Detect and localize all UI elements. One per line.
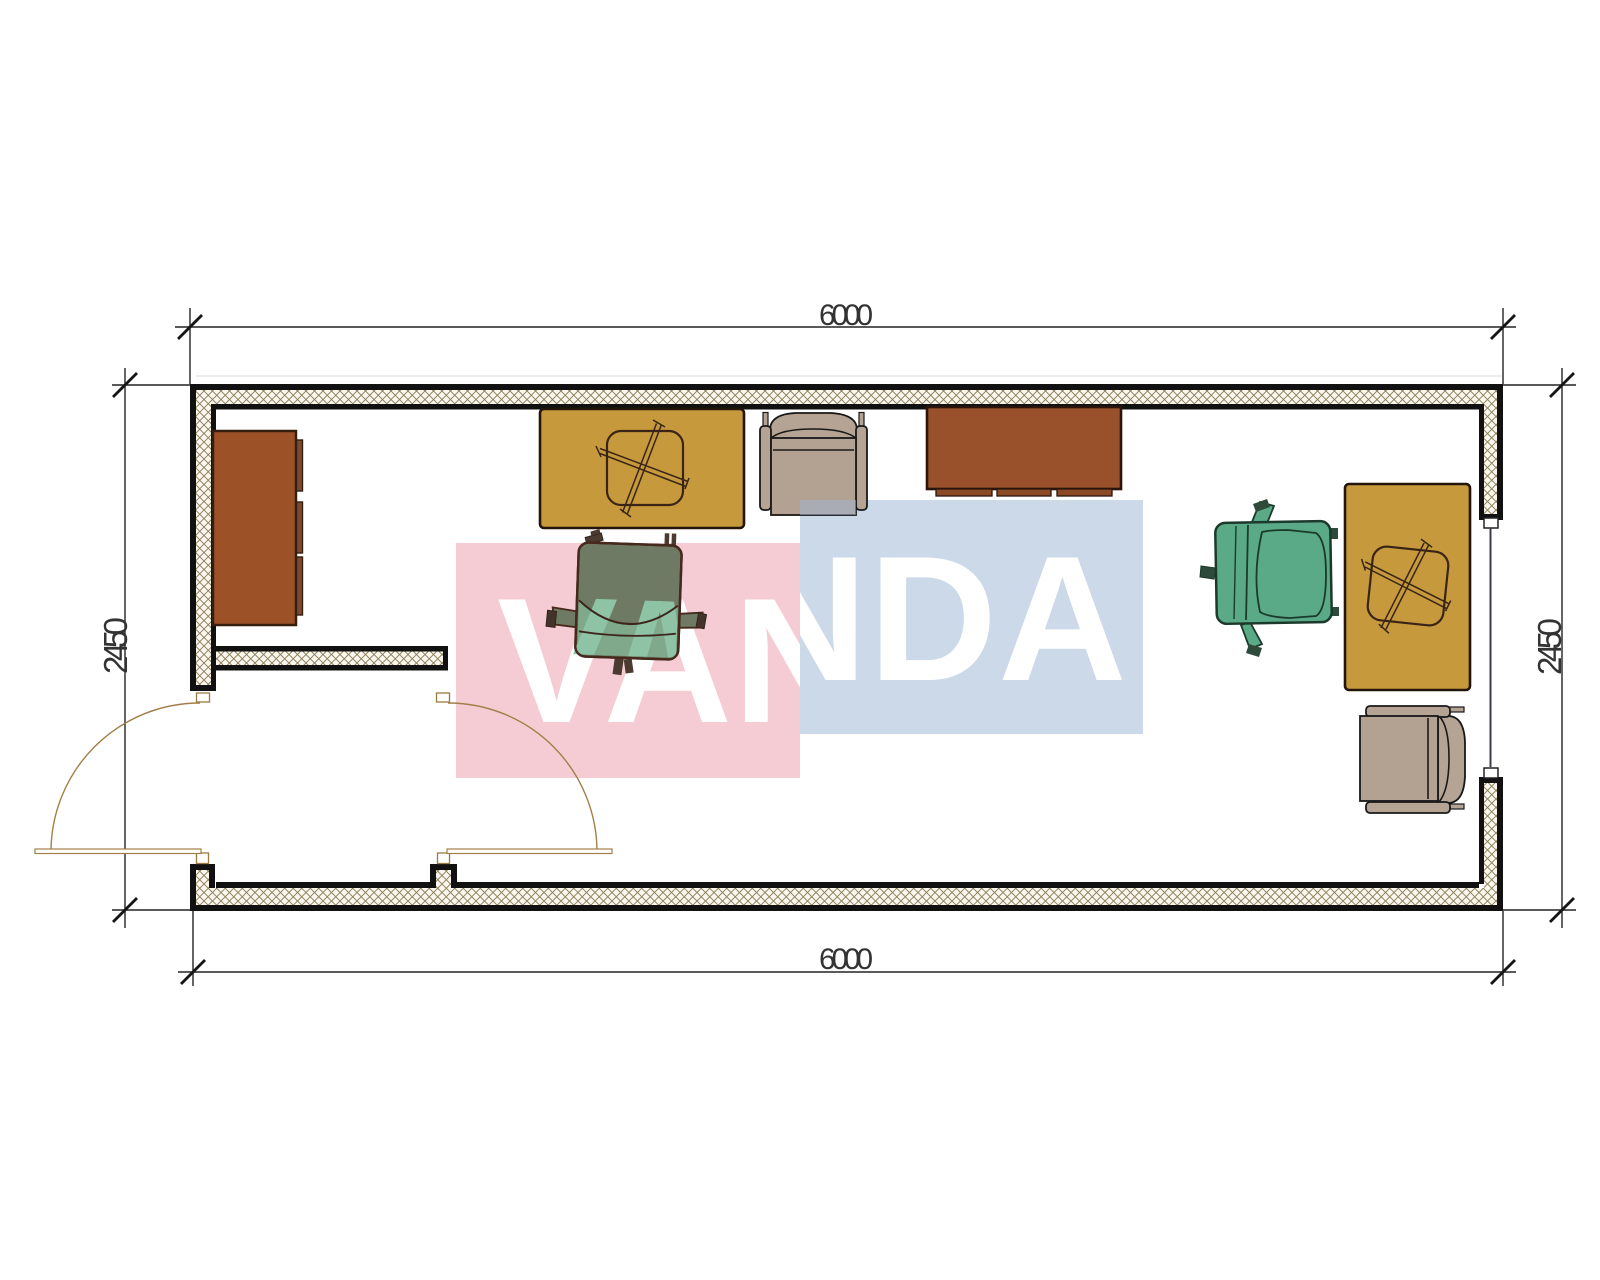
svg-text:6000: 6000 xyxy=(819,299,873,332)
svg-text:6000: 6000 xyxy=(819,943,873,976)
svg-text:2450: 2450 xyxy=(1531,618,1568,675)
svg-text:2450: 2450 xyxy=(97,617,134,674)
